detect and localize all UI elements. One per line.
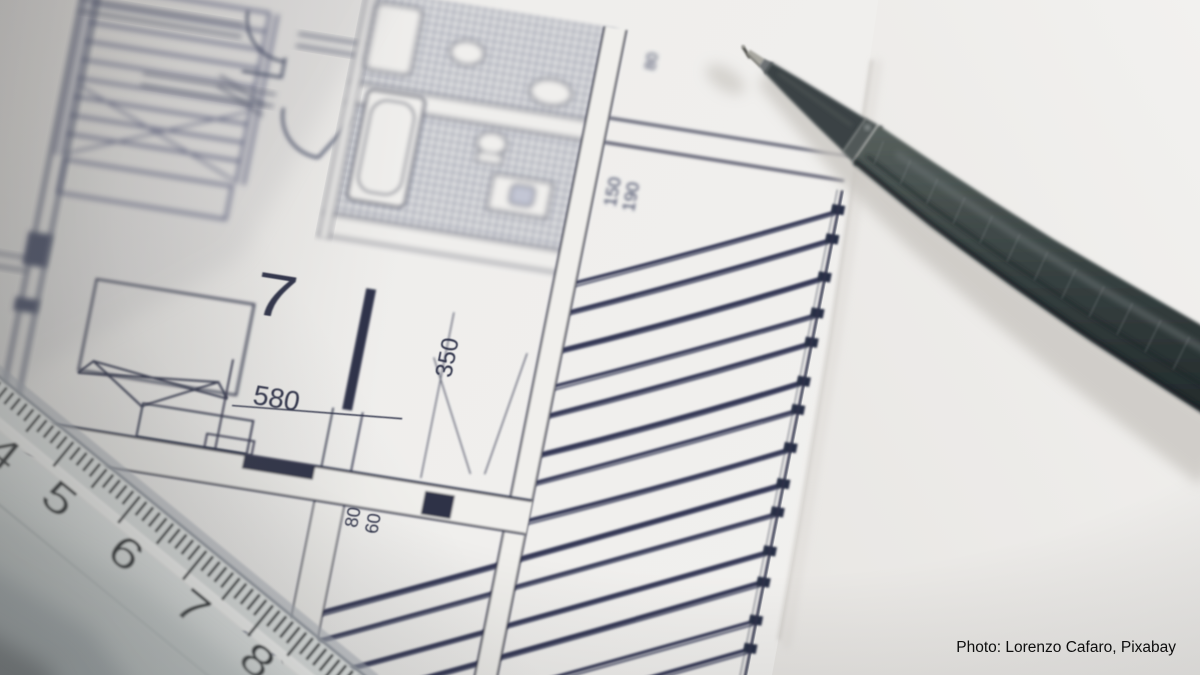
svg-text:Photo: Lorenzo Cafaro, Pixabay: Photo: Lorenzo Cafaro, Pixabay: [956, 639, 1176, 656]
